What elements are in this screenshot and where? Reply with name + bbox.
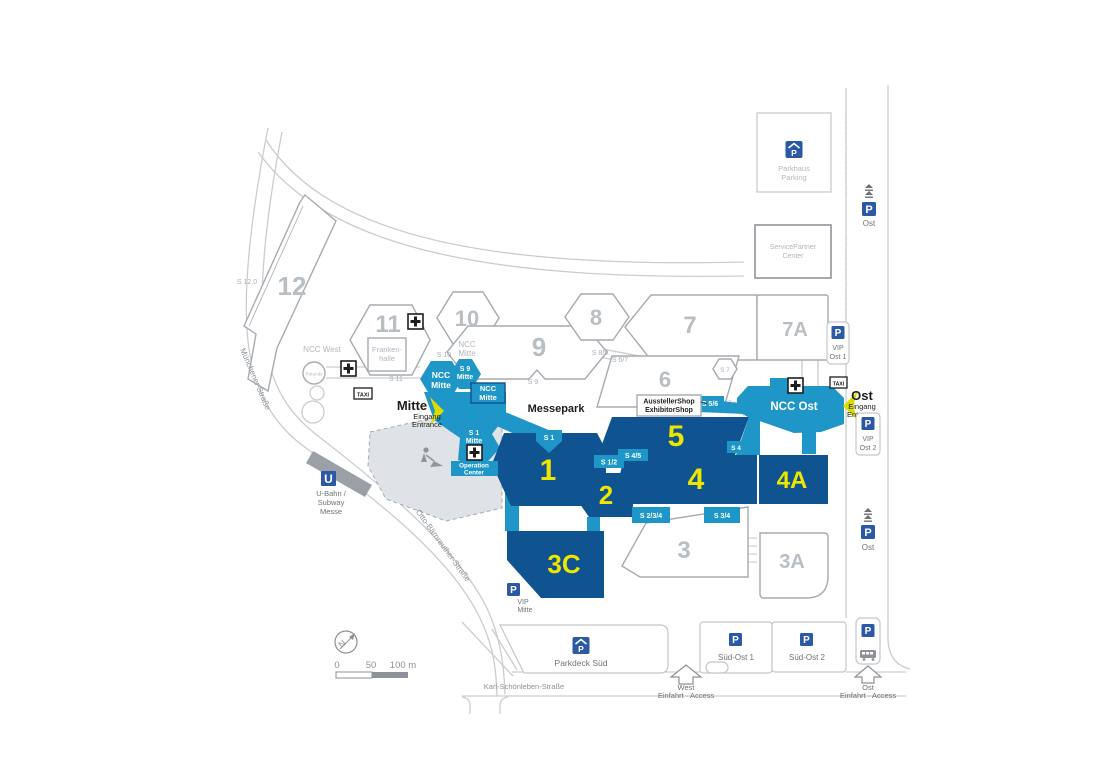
hall-4a-number: 4A	[777, 467, 808, 494]
svg-text:Mitte: Mitte	[517, 607, 532, 614]
first-aid-icon-operation	[467, 445, 482, 460]
label-s8-9: S 8/9	[592, 350, 608, 357]
svg-text:Mitte: Mitte	[479, 393, 497, 402]
access-west-arrow	[671, 665, 701, 684]
hall-7-number: 7	[683, 312, 696, 339]
hall-12-number: 12	[278, 271, 307, 301]
sued-ost2-box	[772, 622, 846, 672]
ncc-ost-stem	[802, 432, 816, 454]
sued-ost2-label: Süd-Ost 2	[789, 653, 826, 662]
label-s6-7: S 6/7	[612, 357, 628, 364]
svg-text:P: P	[865, 419, 872, 430]
covered-parking-icon-parkhaus: P	[786, 141, 803, 158]
hall-3a-number: 3A	[779, 551, 805, 573]
taxi-sign-ost: TAXI	[830, 377, 847, 388]
scale-bar: 0 50 100 m	[334, 660, 416, 678]
svg-text:VIP: VIP	[517, 599, 529, 606]
svg-text:P: P	[864, 527, 871, 539]
gate-s4-5: S 4/5	[625, 453, 641, 460]
service-partner-label: ServicePartner	[770, 244, 817, 251]
p-ost-mid-label: Ost	[862, 543, 875, 552]
hall-9-number: 9	[532, 332, 546, 362]
gate-s3-4: S 3/4	[714, 513, 730, 520]
service-partner-shape	[755, 225, 831, 278]
svg-text:Einfahrt · Access: Einfahrt · Access	[658, 691, 715, 700]
gate-s1-2: S 1/2	[601, 460, 617, 467]
svg-text:Subway: Subway	[318, 498, 345, 507]
taxi-sign-west: TAXI	[354, 388, 372, 399]
hall-11-number: 11	[375, 311, 400, 338]
covered-parking-icon-parkdeck: P	[573, 637, 590, 654]
hall-10-number: 10	[455, 306, 479, 331]
s1-mitte-label: S 1	[469, 430, 480, 437]
label-s7: S 7	[720, 367, 730, 374]
gate-s2-3-4: S 2/3/4	[640, 513, 662, 520]
lane-chevrons-icon-top	[865, 184, 873, 198]
hall-6-number: 6	[659, 367, 671, 392]
svg-text:P: P	[865, 626, 872, 637]
sued-ost1-label: Süd-Ost 1	[718, 653, 755, 662]
svg-text:ExhibitorShop: ExhibitorShop	[645, 407, 693, 414]
parkhaus-label: Parkhaus	[778, 164, 810, 173]
lane-chevrons-icon-mid	[864, 508, 872, 522]
hall-4-shape	[612, 455, 757, 504]
first-aid-icon-ncc-west	[341, 361, 356, 376]
svg-text:VIP: VIP	[832, 345, 844, 352]
svg-text:P: P	[578, 644, 584, 654]
hall-4-number: 4	[688, 463, 705, 496]
access-ost: Ost Einfahrt · Access	[840, 666, 897, 700]
rotunde-label: Rotunde	[305, 372, 323, 377]
svg-text:P: P	[835, 328, 842, 339]
hall-8-number: 8	[590, 305, 602, 330]
svg-text:halle: halle	[379, 354, 395, 363]
hall-3-number: 3	[677, 537, 690, 564]
svg-text:VIP: VIP	[862, 436, 874, 443]
svg-text:P: P	[791, 148, 797, 158]
svg-text:50: 50	[366, 660, 377, 671]
gate-s5-6: S 5/6	[702, 401, 718, 408]
svg-text:Ost 1: Ost 1	[830, 354, 847, 361]
entrance-mitte-title: Mitte	[397, 398, 427, 413]
p-ost-top-label: Ost	[863, 219, 876, 228]
svg-text:TAXI: TAXI	[833, 382, 845, 388]
access-ost-arrow	[855, 666, 881, 683]
label-s9: S 9	[528, 379, 539, 386]
label-s10: S 10	[437, 352, 452, 359]
svg-text:0: 0	[334, 660, 339, 671]
svg-text:Messe: Messe	[320, 507, 342, 516]
street-karl: Karl-Schönleben-Straße	[484, 682, 564, 691]
svg-text:TAXI: TAXI	[357, 393, 370, 399]
ncc-mitte-outline-label: NCC	[458, 340, 476, 349]
svg-text:Ost 2: Ost 2	[860, 445, 877, 452]
svg-text:P: P	[510, 585, 517, 596]
hall-2-number: 2	[599, 480, 613, 510]
svg-text:Einfahrt · Access: Einfahrt · Access	[840, 691, 897, 700]
svg-text:U-Bahn /: U-Bahn /	[316, 489, 347, 498]
frankenhalle-label: Franken-	[372, 345, 403, 354]
hall-7a-number: 7A	[782, 319, 808, 341]
label-s11: S 11	[389, 376, 403, 383]
svg-text:U: U	[324, 472, 333, 486]
label-s12-0: S 12.0	[237, 279, 257, 286]
svg-text:100 m: 100 m	[390, 660, 416, 671]
svg-text:P: P	[732, 635, 739, 646]
first-aid-icon-hall11	[408, 314, 423, 329]
corridor-hall2-stem	[587, 517, 600, 531]
ncc-ost-label: NCC Ost	[770, 401, 817, 413]
operation-center-label: Operation	[459, 463, 489, 470]
svg-text:Center: Center	[464, 470, 484, 477]
fairground-map: S 1 S 1/2 S 4/5 S 2/3/4 S 3/4 S 5/6 S 4 …	[0, 0, 1099, 777]
svg-text:P: P	[803, 635, 810, 646]
svg-text:P: P	[865, 204, 872, 216]
svg-text:Entrance: Entrance	[412, 420, 442, 429]
s9-mitte-label: S 9	[460, 366, 471, 373]
gate-s4: S 4	[731, 445, 741, 452]
hall-3c-number: 3C	[547, 549, 580, 579]
first-aid-icon-ncc-ost	[788, 378, 803, 393]
svg-text:Center: Center	[782, 253, 804, 260]
ncc-mitte-rect-label: NCC	[480, 384, 497, 393]
svg-text:Mitte: Mitte	[458, 349, 476, 358]
hall-5-number: 5	[668, 420, 685, 453]
parkdeck-sued-label: Parkdeck Süd	[555, 658, 608, 668]
svg-text:Mitte: Mitte	[457, 374, 473, 381]
ncc-mitte-hex-label: NCC	[432, 370, 450, 380]
hall-1-number: 1	[540, 454, 557, 487]
sued-ost1-loop	[706, 662, 728, 673]
entrance-ost-title: Ost	[851, 388, 873, 403]
compass: N	[335, 631, 357, 653]
gate-s1: S 1	[544, 435, 555, 442]
ncc-west-label: NCC West	[303, 345, 341, 354]
svg-text:Parking: Parking	[781, 173, 806, 182]
svg-text:Mitte: Mitte	[431, 380, 451, 390]
messepark-label: Messepark	[528, 403, 586, 415]
svg-text:Mitte: Mitte	[466, 438, 482, 445]
exhibitor-shop-label: AusstellerShop	[643, 399, 694, 406]
map-canvas: S 1 S 1/2 S 4/5 S 2/3/4 S 3/4 S 5/6 S 4 …	[0, 0, 1099, 777]
